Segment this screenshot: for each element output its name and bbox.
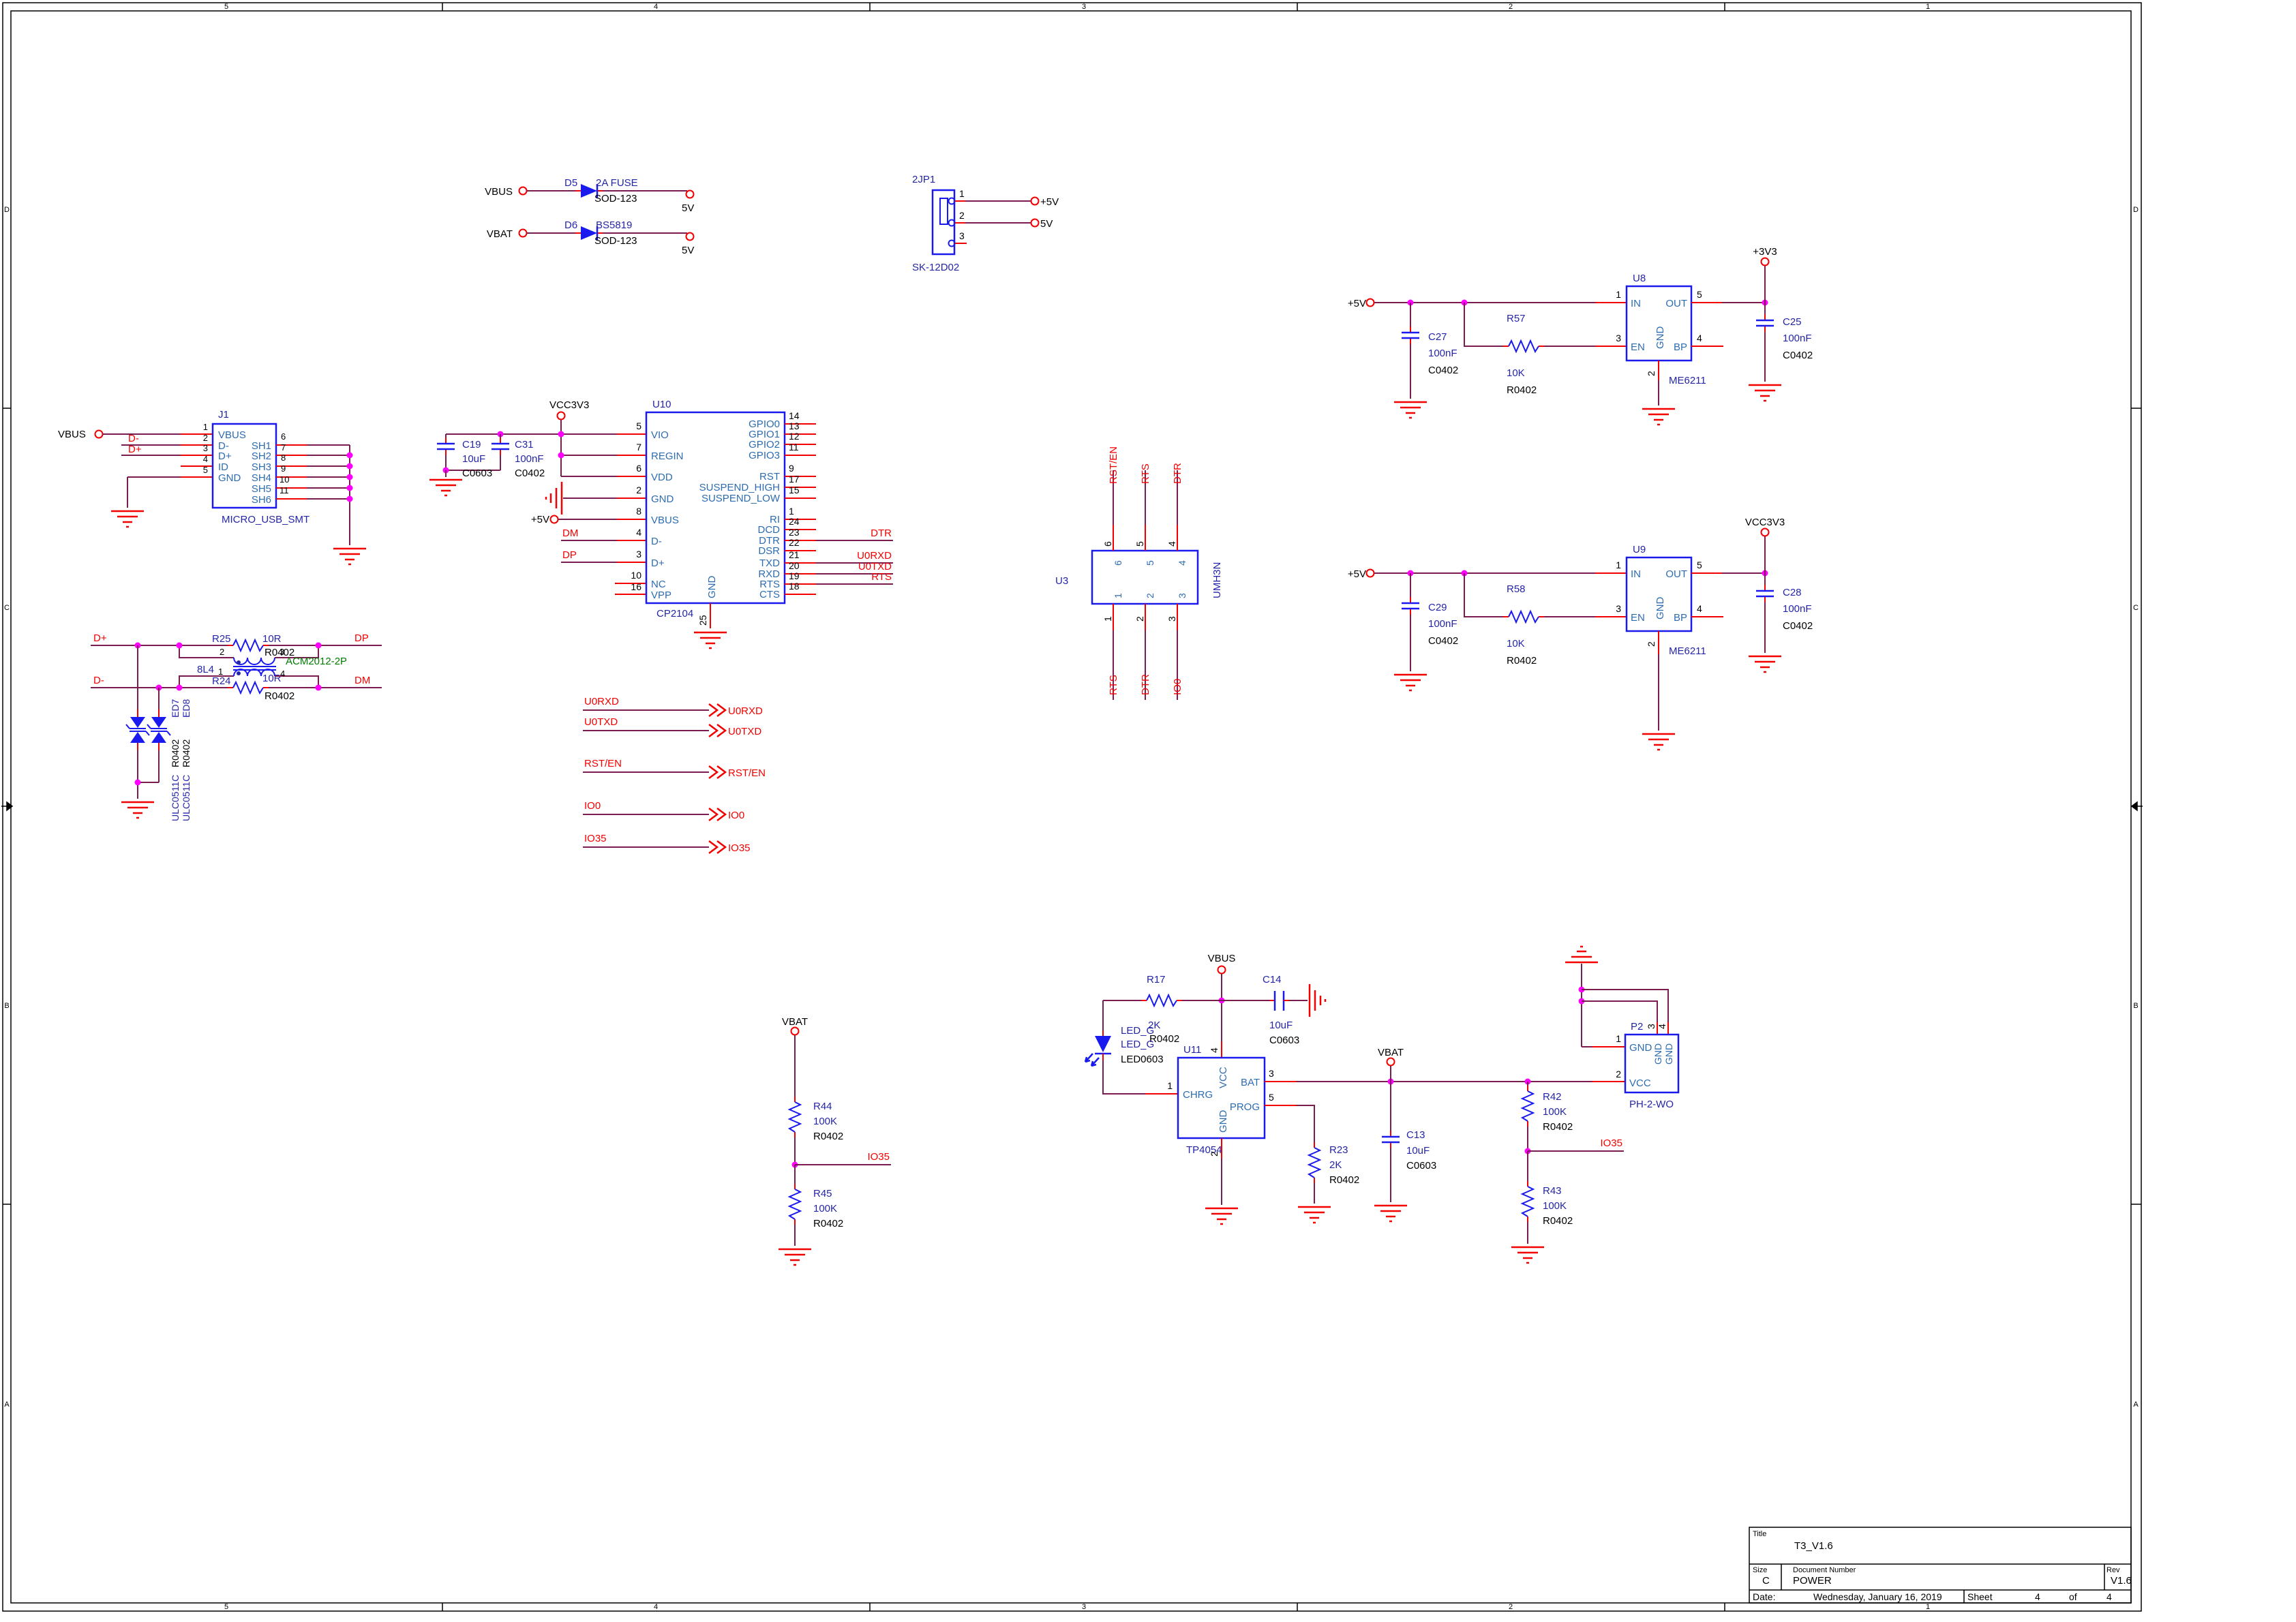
c13-refdes: C13 bbox=[1406, 1129, 1425, 1141]
u8-in-port bbox=[1367, 299, 1374, 307]
pin-name: VIO bbox=[651, 429, 669, 441]
r44-value: 100K bbox=[813, 1116, 837, 1127]
schematic-sheet: 5 4 3 2 1 5 4 3 2 1 D C B A D C B A Titl… bbox=[0, 0, 2296, 1622]
j1-pin-name: SH2 bbox=[252, 450, 271, 462]
zone-label: D bbox=[2133, 206, 2139, 214]
c25-ground bbox=[1749, 385, 1781, 401]
j1-pin-number: 7 bbox=[281, 442, 286, 453]
u10-gnd-symbol bbox=[546, 482, 562, 515]
net-label-io0: IO0 bbox=[1172, 679, 1183, 695]
pin-number: 4 bbox=[1657, 1024, 1667, 1029]
pin-name: TXD bbox=[759, 557, 780, 569]
capacitor-c29 bbox=[1402, 597, 1419, 615]
pin-name: 4 bbox=[1177, 560, 1188, 566]
date-value: Wednesday, January 16, 2019 bbox=[1813, 1591, 1942, 1602]
c29-value: 100nF bbox=[1428, 618, 1457, 630]
offpage-label: U0RXD bbox=[728, 705, 763, 717]
pin-number: 19 bbox=[789, 570, 800, 581]
offpage-label: IO0 bbox=[584, 800, 601, 812]
pin-number: 4 bbox=[1697, 603, 1702, 614]
d6-refdes: D6 bbox=[564, 219, 577, 231]
c14-refdes: C14 bbox=[1263, 974, 1282, 985]
pin-number: 24 bbox=[789, 516, 800, 527]
sheet-total: 4 bbox=[2106, 1591, 2112, 1602]
net-label-dm2: DM bbox=[562, 527, 578, 539]
u8-refdes: U8 bbox=[1633, 273, 1646, 284]
pin-name: EN bbox=[1631, 341, 1645, 353]
u8-value: ME6211 bbox=[1669, 375, 1706, 386]
c27-refdes: C27 bbox=[1428, 331, 1447, 343]
pin-number: 5 bbox=[636, 420, 641, 431]
resistor-r42 bbox=[1522, 1086, 1533, 1127]
vbat-port bbox=[519, 230, 527, 237]
charger-vbat-label: VBAT bbox=[1378, 1047, 1404, 1058]
ed7-refdes: ED7 bbox=[170, 699, 181, 718]
pin-number: 11 bbox=[789, 442, 799, 453]
u8-out-port bbox=[1762, 258, 1769, 266]
pin-name: GND bbox=[1629, 1042, 1652, 1054]
offpage-label: U0TXD bbox=[584, 716, 618, 728]
net-label-vcc3v3-out: VCC3V3 bbox=[1745, 517, 1785, 528]
j1-pin-number: 3 bbox=[203, 443, 208, 453]
j1-pin-number: 1 bbox=[203, 422, 208, 432]
tvs-ed8 bbox=[147, 709, 170, 750]
c14-footprint: C0603 bbox=[1269, 1035, 1299, 1046]
vcc3v3-port bbox=[558, 412, 565, 420]
pin-number: 3 bbox=[1269, 1068, 1274, 1079]
j1-pin-number: 9 bbox=[281, 463, 286, 474]
pin-number: 22 bbox=[789, 537, 800, 548]
offpage-label: RST/EN bbox=[584, 758, 622, 769]
transistor-array-u3: U3 RST/EN RTS DTR 6 5 4 6 5 4 1 2 3 1 2 … bbox=[1055, 446, 1223, 700]
r44-footprint: R0402 bbox=[813, 1131, 843, 1142]
net-label-dminus: D- bbox=[128, 433, 139, 444]
vbat-divider: VBAT IO35 R44 100K R0402 R45 100K R0402 bbox=[779, 1016, 891, 1265]
pin-name: VPP bbox=[651, 590, 671, 601]
net-label-rst-en: RST/EN bbox=[1108, 446, 1119, 484]
zone-label: A bbox=[2133, 1401, 2139, 1409]
pin-number: 5 bbox=[1697, 560, 1702, 570]
jp1-pin1: 1 bbox=[959, 188, 965, 199]
zone-label: C bbox=[2133, 604, 2139, 612]
sheet-of: of bbox=[2069, 1591, 2077, 1602]
net-label-io35: IO35 bbox=[1600, 1137, 1622, 1149]
micro-usb-j1: VBUS D- D+ J1 1 2 3 4 5 VBUS D- D+ ID GN… bbox=[58, 409, 366, 564]
net-label-vcc3v3: VCC3V3 bbox=[549, 399, 589, 411]
d6-footprint: SOD-123 bbox=[594, 235, 637, 247]
j1-pin-name: GND bbox=[218, 472, 241, 484]
u10-5v-port bbox=[551, 516, 558, 523]
resistor-r58 bbox=[1503, 611, 1544, 622]
ed8-value: ULC0511C bbox=[181, 775, 192, 821]
c28-ground bbox=[1749, 656, 1781, 672]
net-label-dminus2: D- bbox=[93, 675, 104, 686]
resistor-r57 bbox=[1503, 341, 1544, 352]
r43-ground bbox=[1511, 1247, 1544, 1263]
r58-value: 10K bbox=[1507, 638, 1525, 649]
pin-name: 2 bbox=[1145, 593, 1155, 598]
r23-ground bbox=[1298, 1207, 1331, 1223]
d5-value: 2A FUSE bbox=[596, 177, 638, 189]
u9-ground bbox=[1642, 734, 1675, 750]
ed8-footprint: R0402 bbox=[181, 739, 192, 767]
u9-in-port bbox=[1367, 570, 1374, 577]
j1-pin-number: 6 bbox=[281, 431, 286, 442]
zone-label: 2 bbox=[1509, 1603, 1513, 1611]
led-value: LED_G bbox=[1121, 1039, 1154, 1050]
div1-vbat-label: VBAT bbox=[782, 1016, 808, 1028]
charger-vbus-label: VBUS bbox=[1208, 953, 1236, 964]
net-label-dtr: DTR bbox=[1172, 463, 1183, 484]
d5-footprint: SOD-123 bbox=[594, 193, 637, 204]
r42-refdes: R42 bbox=[1543, 1091, 1562, 1103]
led-footprint: LED0603 bbox=[1121, 1054, 1164, 1065]
pin-number: 5 bbox=[1134, 541, 1145, 547]
pin-number: 13 bbox=[789, 420, 800, 431]
c25-footprint: C0402 bbox=[1783, 350, 1813, 361]
pin-name: CTS bbox=[759, 589, 780, 600]
pin-name: DCD bbox=[758, 524, 781, 536]
j1-footprint: MICRO_USB_SMT bbox=[222, 514, 309, 525]
j1-vbus-port bbox=[95, 431, 103, 438]
c27-value: 100nF bbox=[1428, 348, 1457, 359]
pin-number: 7 bbox=[636, 442, 641, 453]
offpage-label: IO0 bbox=[728, 810, 744, 821]
c29-refdes: C29 bbox=[1428, 602, 1447, 613]
r25-value: 10R bbox=[262, 633, 282, 645]
title-label: Title bbox=[1753, 1530, 1766, 1538]
net-label-dm: DM bbox=[354, 675, 370, 686]
jp1-footprint: SK-12D02 bbox=[912, 262, 959, 273]
d5-refdes: D5 bbox=[564, 177, 577, 189]
pin-number: 2 bbox=[1646, 641, 1657, 647]
offpage-connectors: U0RXD U0RXD U0TXD U0TXD RST/EN RST/EN IO… bbox=[583, 696, 766, 854]
r57-refdes: R57 bbox=[1507, 313, 1526, 324]
pin-name-gnd25: GND bbox=[706, 576, 718, 599]
title-block: Title T3_V1.6 Size C Document Number POW… bbox=[1749, 1527, 2132, 1603]
r43-refdes: R43 bbox=[1543, 1185, 1562, 1197]
r42-value: 100K bbox=[1543, 1106, 1567, 1118]
r23-footprint: R0402 bbox=[1329, 1174, 1359, 1186]
ed7-value: ULC0511C bbox=[170, 775, 181, 821]
sheet-number: 4 bbox=[2035, 1591, 2040, 1602]
p2-top-ground bbox=[1565, 947, 1598, 962]
choke-pin1: 1 bbox=[218, 667, 223, 677]
pin-name: GPIO2 bbox=[749, 439, 780, 450]
pin-name: IN bbox=[1631, 568, 1641, 580]
pin-number: 2 bbox=[1134, 616, 1145, 622]
pin-number: 14 bbox=[789, 410, 800, 421]
zone-label: 3 bbox=[1082, 1603, 1086, 1611]
u10-value: CP2104 bbox=[656, 608, 693, 619]
r17-value: 2K bbox=[1148, 1020, 1160, 1031]
c19-refdes: C19 bbox=[462, 439, 481, 450]
p2-footprint: PH-2-WO bbox=[1629, 1099, 1674, 1110]
j1-pin-number: 5 bbox=[203, 465, 208, 475]
j1-pin-name: VBUS bbox=[218, 429, 246, 441]
pin-name: IN bbox=[1631, 298, 1641, 309]
pin-number: 1 bbox=[1616, 560, 1621, 570]
capacitor-c19 bbox=[437, 438, 455, 455]
p2-refdes: P2 bbox=[1631, 1021, 1643, 1032]
pin-name: GND bbox=[1652, 1043, 1663, 1065]
c27-ground bbox=[1394, 402, 1427, 418]
u10-5v-label: +5V bbox=[531, 514, 549, 525]
pin-number: 2 bbox=[1616, 1069, 1621, 1080]
pin-number: 3 bbox=[1616, 333, 1621, 343]
pin-number: 1 bbox=[1102, 616, 1113, 622]
pin-name: OUT bbox=[1665, 298, 1687, 309]
led-symbol bbox=[1095, 1036, 1111, 1052]
pin-name: 1 bbox=[1113, 593, 1123, 598]
c28-refdes: C28 bbox=[1783, 587, 1802, 598]
pin-name: BP bbox=[1674, 612, 1687, 624]
c13-footprint: C0603 bbox=[1406, 1160, 1436, 1172]
offpage-label: RST/EN bbox=[728, 767, 766, 779]
j1-pin-number: 8 bbox=[281, 453, 286, 463]
r45-refdes: R45 bbox=[813, 1188, 832, 1199]
u9-out-port bbox=[1762, 529, 1769, 536]
jp1-pin3: 3 bbox=[959, 230, 965, 241]
c19-value: 10uF bbox=[462, 453, 485, 465]
offpage-label: IO35 bbox=[584, 833, 607, 844]
net-label-dtr: DTR bbox=[871, 527, 892, 539]
choke-pin3: 3 bbox=[280, 647, 284, 657]
net-label-vbat: VBAT bbox=[487, 228, 513, 240]
sheet-title: T3_V1.6 bbox=[1794, 1540, 1833, 1552]
pin-number: 17 bbox=[789, 474, 800, 485]
zone-label: 5 bbox=[224, 3, 228, 11]
zone-label: B bbox=[2133, 1002, 2138, 1010]
jp1-5v-port-1 bbox=[1031, 198, 1039, 205]
u3-value: UMH3N bbox=[1211, 562, 1223, 598]
pin-number: 1 bbox=[1616, 1033, 1621, 1044]
pin-name: 5 bbox=[1145, 560, 1155, 566]
pin-number: 12 bbox=[789, 431, 800, 442]
r24-footprint: R0402 bbox=[265, 690, 294, 702]
c14-value: 10uF bbox=[1269, 1020, 1293, 1031]
c28-value: 100nF bbox=[1783, 603, 1812, 615]
pin-number: 2 bbox=[636, 485, 641, 495]
net-label-rts: RTS bbox=[1140, 463, 1151, 484]
r44-refdes: R44 bbox=[813, 1101, 832, 1112]
pin-name: VCC bbox=[1629, 1077, 1651, 1089]
offpage-label: U0TXD bbox=[728, 726, 761, 737]
caps-ground bbox=[429, 480, 462, 495]
ldo-u9: +5V C29 100nF C0402 R58 10K R0402 U9 1 3… bbox=[1348, 517, 1813, 750]
c31-footprint: C0402 bbox=[515, 468, 545, 479]
pin-name: BAT bbox=[1241, 1077, 1260, 1088]
resistor-r43 bbox=[1522, 1181, 1533, 1222]
zone-label: 2 bbox=[1509, 3, 1513, 11]
pin-number: 9 bbox=[789, 463, 794, 474]
r45-ground bbox=[779, 1249, 811, 1265]
vbus-port bbox=[519, 187, 527, 195]
resistor-r44 bbox=[789, 1097, 800, 1137]
r58-footprint: R0402 bbox=[1507, 655, 1537, 667]
zone-label: 1 bbox=[1926, 1603, 1930, 1611]
capacitor-c27 bbox=[1402, 326, 1419, 344]
choke-pin2: 2 bbox=[220, 647, 224, 657]
choke-pin4: 4 bbox=[280, 669, 285, 679]
pin-number-25: 25 bbox=[697, 615, 708, 626]
usb-esd-choke: D+ DP D- DM R25 10R R0402 R24 10R R0402 … bbox=[91, 632, 382, 821]
net-label-io35-2: IO35 bbox=[867, 1151, 890, 1163]
r42-footprint: R0402 bbox=[1543, 1121, 1573, 1133]
ed8-refdes: ED8 bbox=[181, 699, 192, 718]
u11-ground bbox=[1205, 1208, 1238, 1224]
c13-ground bbox=[1374, 1206, 1407, 1221]
pin-number: 5 bbox=[1269, 1092, 1274, 1103]
c31-refdes: C31 bbox=[515, 439, 534, 450]
zone-label: 1 bbox=[1926, 3, 1930, 11]
net-label-dtr2: DTR bbox=[1140, 674, 1151, 695]
net-label-dplus: D+ bbox=[128, 444, 142, 455]
c31-value: 100nF bbox=[515, 453, 544, 465]
j1-pin-name: SH5 bbox=[252, 483, 271, 495]
d6-net: 5V bbox=[682, 245, 694, 256]
docnum-value: POWER bbox=[1793, 1575, 1832, 1587]
net-label-dp2: DP bbox=[562, 549, 577, 561]
pin-name: GND bbox=[1655, 597, 1666, 620]
pin-name: REGIN bbox=[651, 450, 684, 462]
c29-footprint: C0402 bbox=[1428, 635, 1458, 647]
choke-refdes: 8L4 bbox=[197, 664, 214, 675]
u10-refdes: U10 bbox=[652, 399, 671, 410]
pin-number: 10 bbox=[631, 570, 641, 581]
u9-refdes: U9 bbox=[1633, 544, 1646, 555]
zone-label: B bbox=[4, 1002, 9, 1010]
pin-number: 3 bbox=[1166, 616, 1177, 622]
pin-name: OUT bbox=[1665, 568, 1687, 580]
d6-5v-port bbox=[686, 233, 694, 241]
c25-refdes: C25 bbox=[1783, 316, 1802, 328]
resistor-r45 bbox=[789, 1184, 800, 1225]
pin-number: 6 bbox=[1102, 541, 1113, 547]
net-label-vbus: VBUS bbox=[485, 186, 513, 198]
sheet-label: Sheet bbox=[1967, 1591, 1993, 1602]
u9-in-net: +5V bbox=[1348, 568, 1366, 580]
c28-footprint: C0402 bbox=[1783, 620, 1813, 632]
d5-5v-port bbox=[686, 191, 694, 198]
pin-number: 20 bbox=[789, 560, 800, 571]
pin-number: 18 bbox=[789, 581, 800, 592]
battery-charger: VBUS R17 C14 10uF C0603 LED_G 2K R0402 L… bbox=[1085, 953, 1625, 1224]
u9-value: ME6211 bbox=[1669, 645, 1706, 657]
pin-name: GPIO3 bbox=[749, 450, 780, 461]
pin-number: 1 bbox=[1616, 289, 1621, 300]
pin-name: NC bbox=[651, 579, 666, 590]
c29-ground bbox=[1394, 675, 1427, 690]
pin-name: RST bbox=[759, 471, 780, 483]
tvs-ed7 bbox=[126, 709, 149, 750]
offpage-label: U0RXD bbox=[584, 696, 619, 707]
charger-vbat-port bbox=[1387, 1058, 1395, 1066]
pin-number: 23 bbox=[789, 527, 800, 538]
pin-name: GND bbox=[1655, 326, 1666, 350]
capacitor-c31 bbox=[492, 438, 509, 455]
pin-name: BP bbox=[1674, 341, 1687, 353]
rev-value: V1.6 bbox=[2111, 1575, 2132, 1587]
r57-value: 10K bbox=[1507, 367, 1525, 379]
pin-name: SUSPEND_LOW bbox=[701, 493, 781, 504]
jp1-net2: 5V bbox=[1040, 218, 1053, 230]
capacitor-c13 bbox=[1382, 1131, 1400, 1148]
pin-number: 3 bbox=[1616, 603, 1621, 614]
pin-number: 5 bbox=[1697, 289, 1702, 300]
zone-label: 4 bbox=[654, 1603, 658, 1611]
pin-number: 2 bbox=[1646, 371, 1657, 376]
net-label-3v3: +3V3 bbox=[1753, 246, 1777, 258]
input-diodes: VBUS D5 2A FUSE SOD-123 5V VBAT D6 BS581… bbox=[485, 177, 694, 256]
u8-ground bbox=[1642, 409, 1675, 425]
pin-name: VCC bbox=[1218, 1067, 1229, 1088]
j1-pin-number: 4 bbox=[203, 454, 208, 464]
d6-value: BS5819 bbox=[596, 219, 632, 231]
c14-ground bbox=[1310, 984, 1325, 1017]
j1-pin-name: ID bbox=[218, 461, 228, 473]
pin-name: SUSPEND_HIGH bbox=[699, 482, 780, 493]
c13-value: 10uF bbox=[1406, 1145, 1430, 1157]
r43-value: 100K bbox=[1543, 1200, 1567, 1212]
capacitor-c28 bbox=[1756, 585, 1774, 602]
pin-number: 4 bbox=[636, 527, 641, 538]
net-label-rts: RTS bbox=[871, 571, 892, 583]
capacitor-c25 bbox=[1756, 314, 1774, 332]
rev-label: Rev bbox=[2106, 1566, 2120, 1574]
jp1-net1: +5V bbox=[1040, 196, 1059, 208]
pin-name: PROG bbox=[1230, 1101, 1260, 1113]
zone-label: 3 bbox=[1082, 3, 1086, 11]
c19-footprint: C0603 bbox=[462, 468, 492, 479]
zone-label: 4 bbox=[654, 3, 658, 11]
date-label: Date: bbox=[1753, 1591, 1775, 1602]
pin-name: D+ bbox=[651, 557, 665, 569]
pin-name: GND bbox=[651, 493, 674, 505]
net-label-rts2: RTS bbox=[1108, 675, 1119, 695]
u8-in-net: +5V bbox=[1348, 298, 1366, 309]
d5-net: 5V bbox=[682, 202, 694, 214]
pin-name: DSR bbox=[758, 545, 780, 557]
esd-ground bbox=[121, 802, 154, 818]
j1-shield-ground bbox=[333, 549, 366, 564]
cp2104-u10: VCC3V3 C19 10uF C0603 C31 100nF C0402 +5… bbox=[429, 399, 893, 648]
pin-name: GND bbox=[1218, 1110, 1229, 1133]
resistor-r23 bbox=[1309, 1142, 1320, 1183]
pin-name: 3 bbox=[1177, 593, 1188, 598]
pin-name: GND bbox=[1663, 1043, 1674, 1065]
slide-switch-jp1: 2JP1 1 2 3 +5V 5V SK-12D02 bbox=[912, 174, 1059, 273]
u11-refdes: U11 bbox=[1183, 1044, 1201, 1056]
net-label-dp: DP bbox=[354, 632, 369, 644]
docnum-label: Document Number bbox=[1793, 1566, 1856, 1574]
ed7-footprint: R0402 bbox=[170, 739, 181, 767]
j1-refdes: J1 bbox=[218, 409, 229, 420]
charger-vbus-port bbox=[1218, 966, 1226, 974]
net-label-u0rxd: U0RXD bbox=[857, 550, 892, 562]
pin-number: 15 bbox=[789, 485, 800, 495]
jp1-refdes: 2JP1 bbox=[912, 174, 935, 185]
r23-value: 2K bbox=[1329, 1159, 1342, 1171]
j1-pin-name: SH3 bbox=[252, 461, 271, 473]
battery-connector-p2: P2 3 4 GND GND 1 GND 2 VCC PH-2-WO IO35 … bbox=[1511, 947, 1678, 1263]
pin-number: 6 bbox=[636, 463, 641, 474]
j1-pin-number: 10 bbox=[280, 474, 289, 485]
j1-pin-name: SH4 bbox=[252, 472, 271, 484]
pin-number: 3 bbox=[1646, 1024, 1657, 1029]
r43-footprint: R0402 bbox=[1543, 1215, 1573, 1227]
u3-refdes: U3 bbox=[1055, 575, 1068, 587]
